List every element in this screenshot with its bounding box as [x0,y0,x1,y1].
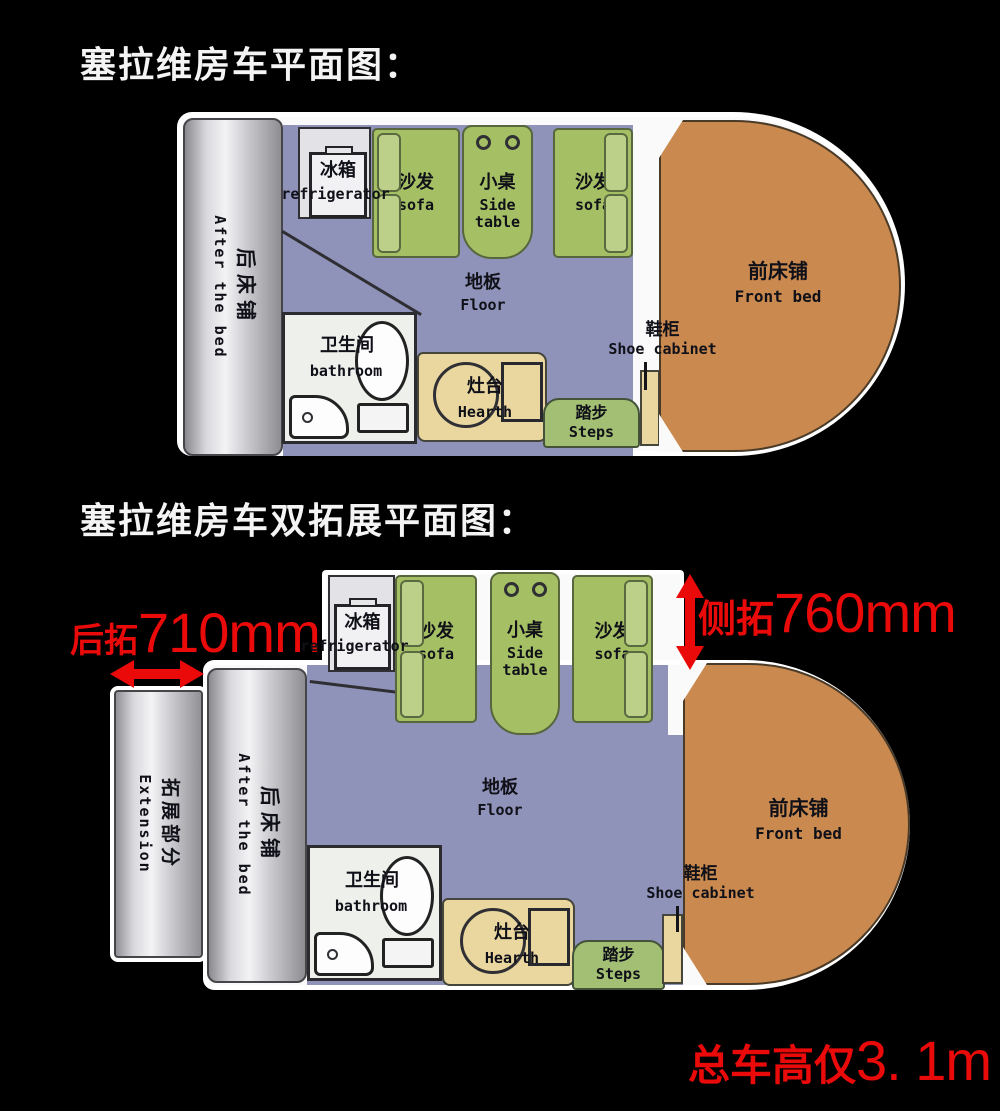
side-table: 小桌 Side table [462,125,533,259]
sink [289,395,349,439]
front-bed-label: 前床铺 Front bed [673,258,883,310]
floor-label-en: Floor [477,802,522,819]
rv-floorplan-poster: 塞拉维房车平面图： 塞拉维房车双拓展平面图： 后床铺 After the bed… [0,0,1000,1111]
front-bed-label-en: Front bed [735,288,822,306]
rear-bed-label-en: After the bed [210,215,227,358]
hearth-label-zh: 灶台 [472,922,552,943]
shoe-cabinet-label-zh: 鞋柜 [646,320,680,340]
toilet-tank [382,938,434,968]
cup-holder [504,582,519,597]
sofa-armrest [624,580,648,647]
extension-label: 拓展部分 Extension [132,719,184,929]
cup-holder [532,582,547,597]
extension-label-en: Extension [136,774,153,873]
steps-label: 踏步 Steps [574,942,663,988]
sofa-armrest [604,133,628,192]
fridge-handle [349,598,377,607]
sofa-right: 沙发 sofa [553,128,633,258]
floor-label-en: Floor [460,297,505,314]
shoe-cabinet-pointer [676,906,679,932]
hearth-label-en: Hearth [454,950,570,967]
rear-bed-label-en: After the bed [234,753,251,896]
steps-label-zh: 踏步 [602,947,634,965]
plan2-title: 塞拉维房车双拓展平面图： [80,492,536,544]
rear-extension-dimension: 后拓710mm [70,600,320,665]
sofa-right: 沙发 sofa [572,575,653,723]
floor-label: 地板 Floor [433,266,533,320]
steps-label-en: Steps [596,966,641,983]
bathroom-label-en: bathroom [291,363,401,380]
plan1-title: 塞拉维房车平面图： [80,36,422,88]
front-bed-area: 前床铺 Front bed [683,663,910,985]
toilet [355,321,409,401]
sink-drain [327,949,338,960]
floorplan-standard: 后床铺 After the bed 冰箱 refrigerator 沙发 sof… [175,106,937,460]
shoe-cabinet-label-zh: 鞋柜 [684,864,718,884]
rear-extension-dimension-label: 后拓 [70,613,138,662]
bathroom-area: 卫生间 bathroom [307,845,442,981]
steps-label-zh: 踏步 [575,405,607,423]
rear-bed-label: 后床铺 After the bed [231,715,283,935]
front-bed-area: 前床铺 Front bed [659,120,901,452]
side-table-label-en: Side table [475,197,520,232]
cab-wall [633,118,655,233]
extension-label-zh: 拓展部分 [158,778,180,870]
front-bed-label-en: Front bed [755,825,842,843]
rear-bed-label: 后床铺 After the bed [207,177,259,397]
sink [314,932,374,976]
front-bed-label-zh: 前床铺 [769,798,829,821]
cup-holder [476,135,491,150]
side-table-label-zh: 小桌 [480,172,516,193]
entry-steps: 踏步 Steps [572,940,665,990]
rear-bed-label-zh: 后床铺 [233,248,256,326]
steps-label: 踏步 Steps [545,400,638,446]
sofa-armrest [624,651,648,718]
side-extension-dimension: 侧拓760mm [698,580,956,645]
front-bed-label: 前床铺 Front bed [695,795,902,847]
side-extension-arrow [674,574,706,670]
front-bed-label-zh: 前床铺 [748,261,808,284]
total-height-note: 总车高仅3. 1m [688,1028,991,1093]
shoe-cabinet-label: 鞋柜 Shoe cabinet [600,314,725,364]
side-table-label-zh: 小桌 [507,620,543,641]
fridge-handle [325,146,353,155]
total-height-note-value: 3. 1m [856,1028,991,1093]
side-extension-dimension-label: 侧拓 [698,588,774,643]
shoe-cabinet [662,914,683,984]
entry-steps: 踏步 Steps [543,398,640,448]
rear-extension-dimension-value: 710mm [138,600,320,665]
bathroom-label-zh: 卫生间 [322,870,422,891]
fridge-label-zh: 冰箱 [337,612,388,633]
side-extension-dimension-value: 760mm [774,580,956,645]
rear-extension-arrow [110,658,204,690]
side-table-label-en: Side table [502,645,547,680]
side-table: 小桌 Side table [490,572,560,735]
hearth-label-zh: 灶台 [445,376,525,397]
sink-drain [302,412,313,423]
side-table-label: 小桌 Side table [464,127,531,257]
toilet [380,856,434,936]
fridge-label-zh: 冰箱 [312,160,364,181]
shoe-cabinet-label-en: Shoe cabinet [646,885,754,902]
floor-label: 地板 Floor [450,771,550,825]
total-height-note-label: 总车高仅 [688,1032,856,1093]
bathroom-label-zh: 卫生间 [297,335,397,356]
floor-label-zh: 地板 [482,777,518,798]
floor-label-zh: 地板 [465,272,501,293]
steps-label-en: Steps [569,424,614,441]
hearth-counter: 灶台 Hearth [442,898,575,986]
toilet-tank [357,403,409,433]
bathroom-area: 卫生间 bathroom [282,312,417,444]
sofa-armrest [400,651,424,718]
side-table-label: 小桌 Side table [492,574,558,733]
sofa-armrest [377,133,401,192]
cab-wall [668,665,683,735]
sofa-armrest [604,194,628,253]
bathroom-label-en: bathroom [316,898,426,915]
hearth-label-en: Hearth [427,404,543,421]
shoe-cabinet [640,370,660,446]
shoe-cabinet-label: 鞋柜 Shoe cabinet [638,858,763,908]
fridge-label-en: refrigerator [253,186,418,203]
rear-bed-label-zh: 后床铺 [257,786,280,864]
cup-holder [505,135,520,150]
shoe-cabinet-pointer [644,362,647,390]
shoe-cabinet-label-en: Shoe cabinet [608,341,716,358]
fridge-label-en: refrigerator [272,638,437,655]
hearth-counter: 灶台 Hearth [417,352,547,442]
